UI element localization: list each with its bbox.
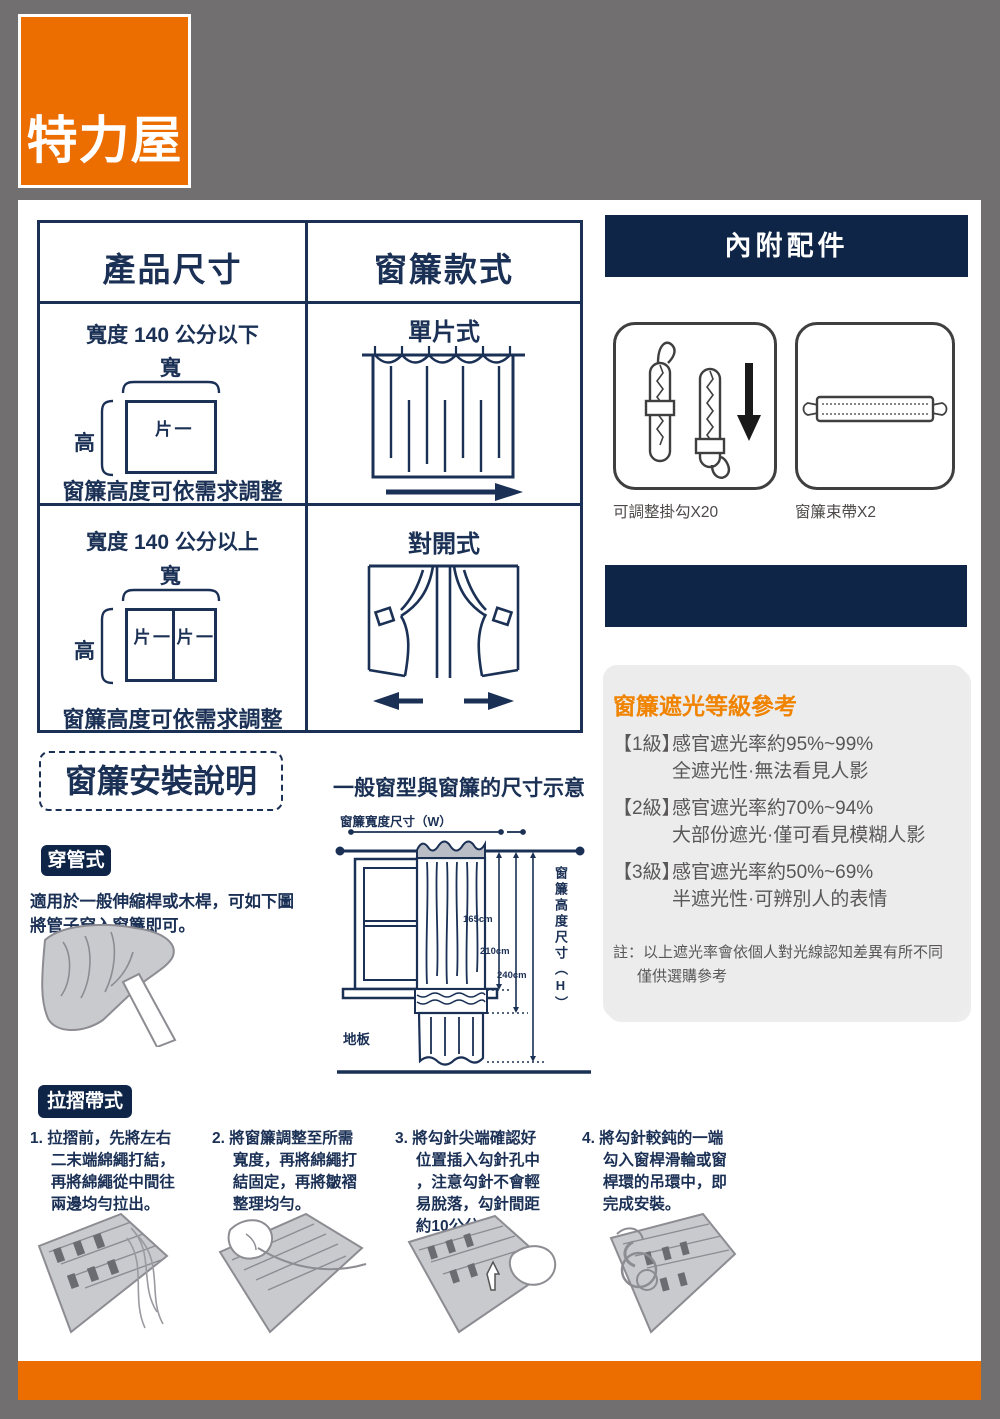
height-label: 高 xyxy=(74,427,95,457)
step-2-illustration xyxy=(210,1212,372,1334)
single-panel-curtain-diagram xyxy=(361,346,526,501)
height-bracket xyxy=(98,398,116,478)
cell-style-split: 對開式 xyxy=(308,506,580,730)
size-title: 寬度 140 公分以上 xyxy=(40,526,305,556)
rod-method-badge: 穿管式 xyxy=(41,845,111,876)
cell-style-single: 單片式 xyxy=(308,304,580,503)
shading-level-1: 【1級】 感官遮光率約95%~99%全遮光性·無法看見人影 xyxy=(613,731,959,785)
step-4-illustration xyxy=(583,1212,740,1334)
brand-logo: 特力屋 xyxy=(18,14,191,188)
footer-bar xyxy=(18,1361,981,1400)
piece-label: 一片 xyxy=(151,420,190,454)
piece-label: 一片 xyxy=(173,628,212,662)
accessory-label-tieband: 窗簾束帶X2 xyxy=(795,500,876,522)
shading-title: 窗簾遮光等級參考 xyxy=(613,687,797,721)
level-desc: 全遮光性·無法看見人影 xyxy=(672,758,873,785)
rod-through-curtain-illustration xyxy=(33,922,208,1047)
slide-right-arrow xyxy=(495,483,523,501)
level-grade: 【2級】 xyxy=(613,795,672,849)
height-adjust-note: 窗簾高度可依需求調整 xyxy=(40,702,305,734)
content-sheet: 產品尺寸 窗簾款式 寬度 140 公分以下 寬 高 一片 窗簾高度可依需求調整 xyxy=(18,200,981,1361)
column-header-curtain-style: 窗簾款式 xyxy=(308,243,580,291)
pleat-step-4: 4. 將勾針較鈍的一端 勾入窗桿滑輪或窗 桿環的吊環中，即 完成安裝。 xyxy=(582,1128,778,1216)
accessory-card-tieband xyxy=(795,322,955,490)
double-panel-curtain-diagram xyxy=(361,560,526,718)
curtain-hooks-icon xyxy=(616,325,774,487)
step-3-illustration xyxy=(403,1212,561,1334)
brand-logo-text: 特力屋 xyxy=(21,99,188,173)
level-rate: 感官遮光率約50%~69% xyxy=(672,859,887,886)
style-name-single: 單片式 xyxy=(308,312,580,347)
height-bracket xyxy=(98,606,116,686)
height-adjust-note: 窗簾高度可依需求調整 xyxy=(40,474,305,506)
insert-down-arrow xyxy=(737,415,761,441)
level-desc: 半遮光性·可辨別人的表情 xyxy=(672,886,887,913)
open-left-arrow xyxy=(373,692,399,710)
level-grade: 【1級】 xyxy=(613,731,672,785)
decorative-navy-bar xyxy=(605,565,967,627)
install-title: 窗簾安裝說明 xyxy=(65,763,257,799)
accessory-label-hooks: 可調整掛勾X20 xyxy=(613,500,718,522)
cell-size-under-140: 寬度 140 公分以下 寬 高 一片 窗簾高度可依需求調整 xyxy=(40,304,305,503)
shading-note: 註：以上遮光率會依個人對光線認知差異有所不同 僅供選購參考 xyxy=(613,941,982,989)
dim-210cm: 210cm xyxy=(480,946,510,957)
width-bracket xyxy=(120,378,222,394)
piece-label: 一片 xyxy=(130,628,169,662)
height-label: 高 xyxy=(74,635,95,665)
accessory-card-hooks xyxy=(613,322,777,490)
height-dimension-label: 窗簾高度尺寸（H） xyxy=(551,866,570,1051)
shading-level-3: 【3級】 感官遮光率約50%~69%半遮光性·可辨別人的表情 xyxy=(613,859,959,913)
install-title-box: 窗簾安裝說明 xyxy=(39,751,283,811)
dim-240cm: 240cm xyxy=(497,970,527,981)
dim-165cm: 165cm xyxy=(463,914,493,925)
accessories-header-bar: 內附配件 xyxy=(605,215,968,277)
open-right-arrow xyxy=(488,692,514,710)
style-name-split: 對開式 xyxy=(308,524,580,559)
shading-reference-panel: 窗簾遮光等級參考 【1級】 感官遮光率約95%~99%全遮光性·無法看見人影 【… xyxy=(603,665,967,1018)
tie-band-icon xyxy=(798,325,952,487)
column-header-product-size: 產品尺寸 xyxy=(40,243,305,291)
window-diagram-title: 一般窗型與窗簾的尺寸示意 xyxy=(333,772,585,802)
cell-size-over-140: 寬度 140 公分以上 寬 高 一片 一片 窗簾高度可依需求調整 xyxy=(40,506,305,730)
size-title: 寬度 140 公分以下 xyxy=(40,319,305,349)
shading-level-2: 【2級】 感官遮光率約70%~94%大部份遮光·僅可看見模糊人影 xyxy=(613,795,959,849)
shading-levels: 【1級】 感官遮光率約95%~99%全遮光性·無法看見人影 【2級】 感官遮光率… xyxy=(613,731,959,923)
level-desc: 大部份遮光·僅可看見模糊人影 xyxy=(672,822,925,849)
level-rate: 感官遮光率約70%~94% xyxy=(672,795,925,822)
curtain-rod xyxy=(123,974,175,1047)
step-1-illustration xyxy=(35,1212,185,1334)
one-panel-size-diagram: 一片 xyxy=(125,400,217,474)
pleat-step-1: 1. 拉摺前，先將左右 二末端綿繩打結， 再將綿繩從中間往 兩邊均勻拉出。 xyxy=(30,1128,236,1216)
pleat-step-2: 2. 將窗簾調整至所需 寬度，再將綿繩打 結固定，再將皺褶 整理均勻。 xyxy=(212,1128,423,1216)
floor-label: 地板 xyxy=(343,1028,370,1048)
pleat-method-badge: 拉摺帶式 xyxy=(38,1085,132,1118)
level-grade: 【3級】 xyxy=(613,859,672,913)
flyer-page: 特力屋 產品尺寸 窗簾款式 寬度 140 公分以下 寬 高 xyxy=(0,0,1000,1419)
hand xyxy=(510,1246,555,1285)
two-panel-size-diagram: 一片 一片 xyxy=(125,608,217,682)
width-bracket xyxy=(120,586,222,602)
level-rate: 感官遮光率約95%~99% xyxy=(672,731,873,758)
accessories-title: 內附配件 xyxy=(605,215,968,277)
size-style-table: 產品尺寸 窗簾款式 寬度 140 公分以下 寬 高 一片 窗簾高度可依需求調整 xyxy=(37,220,583,733)
